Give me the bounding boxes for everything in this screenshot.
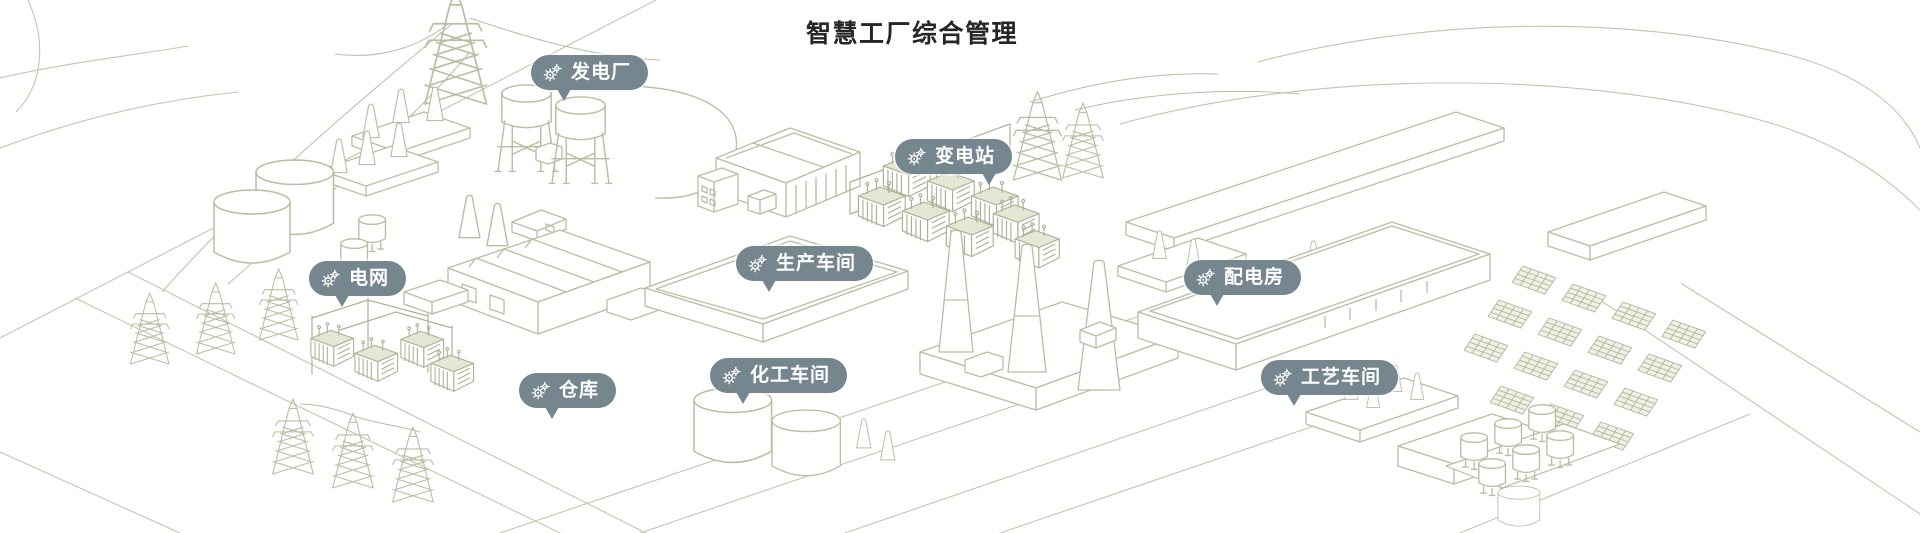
transmission-towers-southwest xyxy=(273,399,434,502)
pin-substation[interactable]: 变电站 xyxy=(895,139,1012,174)
pin-process-workshop[interactable]: 工艺车间 xyxy=(1261,360,1398,395)
chemical-tanks xyxy=(694,388,895,476)
pin-production-workshop[interactable]: 生产车间 xyxy=(736,246,873,281)
sawtooth-warehouse xyxy=(448,230,650,334)
gears-icon xyxy=(1196,268,1215,287)
transmission-towers-east xyxy=(1014,92,1104,180)
pin-power-grid[interactable]: 电网 xyxy=(309,261,406,296)
grid-substation xyxy=(311,298,474,391)
gears-icon xyxy=(321,269,340,288)
gears-icon xyxy=(1273,368,1292,387)
smart-factory-canvas: { "title": "智慧工厂综合管理", "colors": { "pin_… xyxy=(0,0,1920,533)
transmission-towers-west xyxy=(130,269,297,364)
page-title: 智慧工厂综合管理 xyxy=(806,14,1018,50)
gears-icon xyxy=(907,147,926,166)
pin-chemical-workshop[interactable]: 化工车间 xyxy=(710,358,847,393)
pin-label: 变电站 xyxy=(935,147,995,166)
pin-distribution-room[interactable]: 配电房 xyxy=(1184,260,1301,295)
vent-platforms-northwest xyxy=(320,87,470,196)
pin-label: 生产车间 xyxy=(776,254,856,273)
pin-power-plant[interactable]: 发电厂 xyxy=(531,55,648,90)
pin-label: 发电厂 xyxy=(571,63,631,82)
gears-icon xyxy=(748,254,767,273)
pin-label: 电网 xyxy=(349,269,389,288)
pin-label: 工艺车间 xyxy=(1301,368,1381,387)
pin-warehouse[interactable]: 仓库 xyxy=(519,373,616,408)
gears-icon xyxy=(531,381,550,400)
pin-label: 配电房 xyxy=(1224,268,1284,287)
factory-hall xyxy=(698,128,860,217)
pin-label: 仓库 xyxy=(559,381,599,400)
factory-site-illustration xyxy=(0,0,1920,533)
gears-icon xyxy=(722,366,741,385)
pin-label: 化工车间 xyxy=(750,366,830,385)
gears-icon xyxy=(543,63,562,82)
